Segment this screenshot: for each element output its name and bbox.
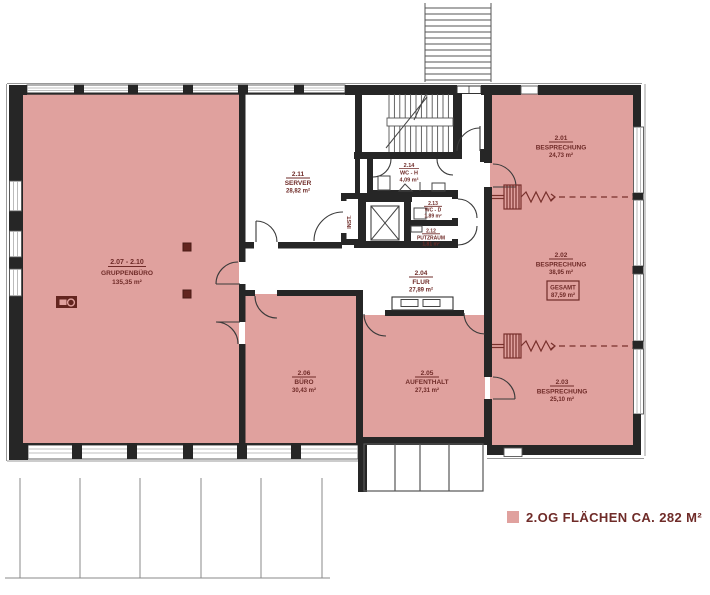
svg-text:2.OG FLÄCHEN CA. 282 M²: 2.OG FLÄCHEN CA. 282 M² (526, 510, 702, 525)
svg-text:2.03: 2.03 (556, 379, 569, 386)
svg-text:GRUPPENBÜRO: GRUPPENBÜRO (101, 268, 153, 277)
svg-text:135,35 m²: 135,35 m² (112, 279, 142, 286)
svg-text:27,89 m²: 27,89 m² (409, 287, 433, 294)
svg-text:2.01: 2.01 (555, 135, 568, 142)
svg-text:FLUR: FLUR (412, 279, 430, 286)
svg-text:38,95 m²: 38,95 m² (549, 269, 573, 276)
svg-text:BESPRECHUNG: BESPRECHUNG (536, 262, 587, 269)
svg-text:BÜRO: BÜRO (294, 377, 313, 386)
svg-text:BESPRECHUNG: BESPRECHUNG (536, 145, 587, 152)
svg-text:27,31 m²: 27,31 m² (415, 387, 439, 394)
svg-text:INST.: INST. (347, 215, 353, 229)
svg-text:2.06: 2.06 (298, 370, 311, 377)
svg-text:GESAMT: GESAMT (550, 286, 576, 292)
svg-text:SERVER: SERVER (285, 180, 312, 187)
svg-text:2.02: 2.02 (555, 252, 568, 259)
svg-text:24,73 m²: 24,73 m² (549, 152, 573, 159)
svg-text:BESPRECHUNG: BESPRECHUNG (537, 389, 588, 396)
svg-text:28,82 m²: 28,82 m² (286, 188, 310, 195)
svg-text:2.11: 2.11 (292, 171, 305, 178)
svg-text:2.04: 2.04 (415, 270, 428, 277)
svg-text:1,81 m²: 1,81 m² (422, 242, 440, 248)
svg-text:4,09 m²: 4,09 m² (400, 177, 419, 184)
svg-text:AUFENTHALT: AUFENTHALT (405, 379, 448, 386)
svg-text:WC - H: WC - H (400, 171, 418, 177)
svg-text:1,89 m²: 1,89 m² (424, 214, 442, 220)
svg-text:2.05: 2.05 (421, 370, 434, 377)
svg-text:2.07 - 2.10: 2.07 - 2.10 (110, 259, 144, 266)
svg-text:30,43 m²: 30,43 m² (292, 387, 316, 394)
svg-text:25,10 m²: 25,10 m² (550, 396, 574, 403)
svg-text:87,59 m²: 87,59 m² (551, 292, 575, 299)
